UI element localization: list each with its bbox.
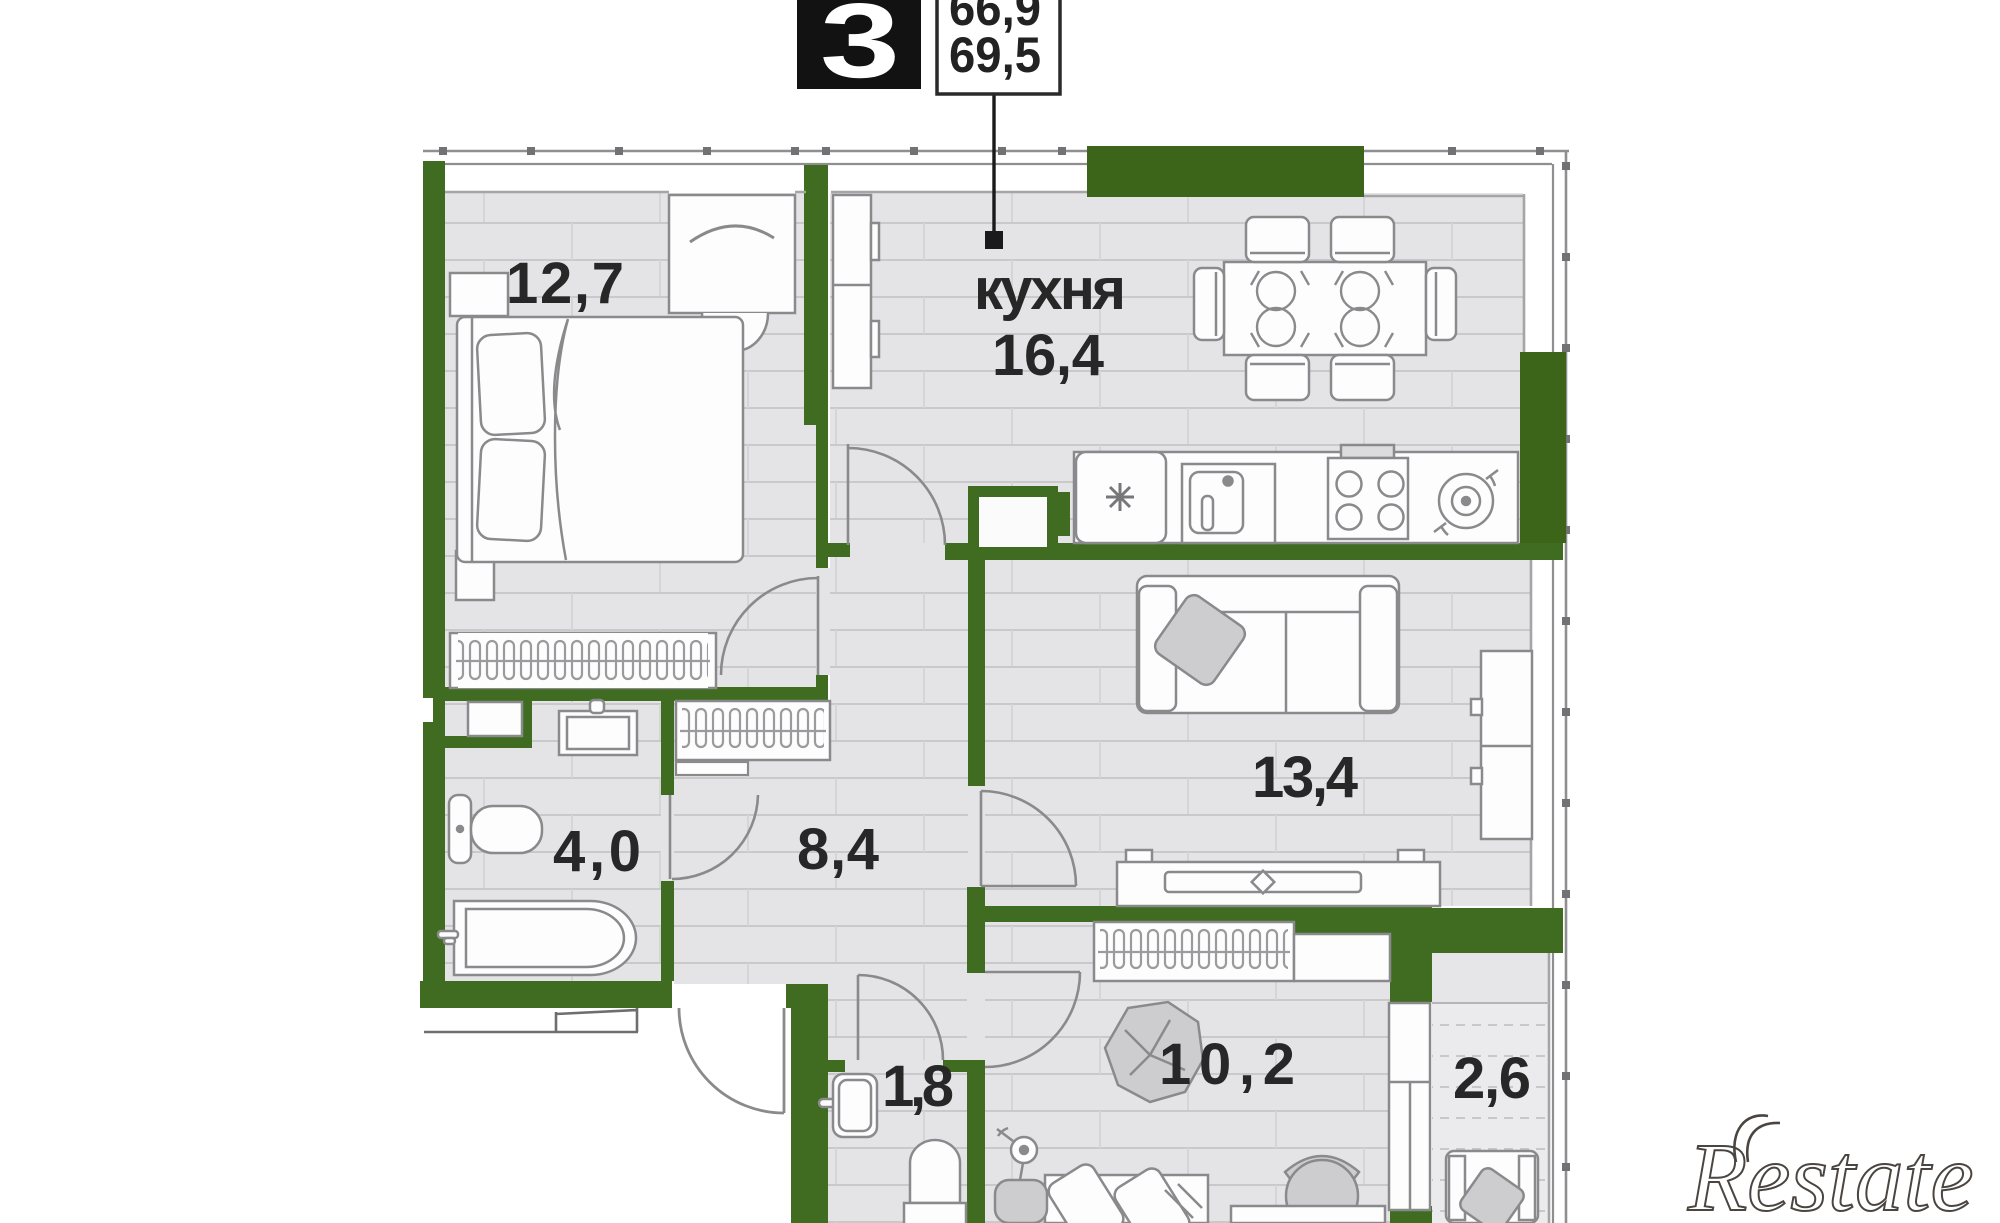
- svg-text:69,5: 69,5: [949, 27, 1041, 83]
- svg-text:2,6: 2,6: [1453, 1046, 1531, 1111]
- svg-text:4,0: 4,0: [553, 819, 641, 884]
- svg-text:12,7: 12,7: [506, 251, 624, 316]
- svg-text:16,4: 16,4: [992, 323, 1104, 388]
- svg-text:Restate: Restate: [1687, 1124, 1974, 1223]
- svg-text:кухня: кухня: [974, 257, 1126, 322]
- svg-text:3: 3: [820, 0, 900, 100]
- svg-text:10,2: 10,2: [1159, 1032, 1295, 1097]
- svg-text:8,4: 8,4: [797, 817, 879, 882]
- svg-text:13,4: 13,4: [1252, 745, 1358, 810]
- svg-text:1,8: 1,8: [882, 1054, 954, 1119]
